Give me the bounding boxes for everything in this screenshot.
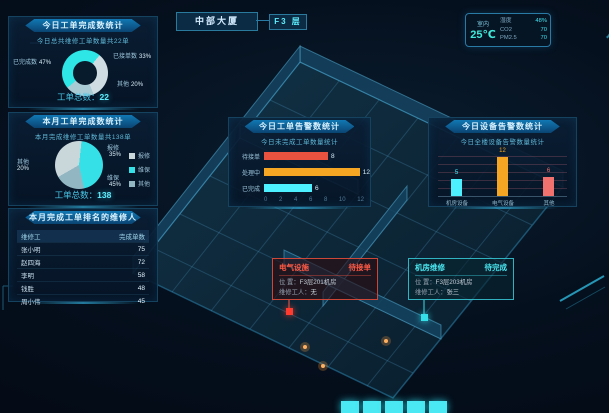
- alert-title: 电气设施: [279, 262, 309, 273]
- alert-status-badge: 待接单: [349, 262, 372, 273]
- panel-title: 今日工单完成数统计: [25, 19, 140, 32]
- dashboard-root: 中部大厦 F3 层 室内 25℃ 湿度 48% CO2 70 PM2.5 70 …: [0, 0, 609, 413]
- alert-card-electrical[interactable]: 电气设施 待接单 位 置：F3层201机房 维修工人：无: [272, 258, 378, 300]
- alert-status-badge: 待完成: [485, 262, 508, 273]
- legend-item: 报修: [129, 151, 150, 160]
- slice-label-repair: 报修35%: [107, 143, 121, 158]
- building-name: 中部大厦: [176, 12, 258, 31]
- table-header-row: 维修工完成单数: [17, 230, 149, 242]
- ranking-table: 维修工完成单数 张小明75 赵四海72 李明58 钱胜48 周小伟45: [17, 230, 149, 307]
- legend-item: 其他: [129, 179, 150, 188]
- work-order-total: 工单总数：22: [9, 91, 157, 103]
- indoor-label: 室内: [466, 19, 500, 28]
- environment-widget: 室内 25℃ 湿度 48% CO2 70 PM2.5 70: [465, 13, 551, 47]
- bar-electrical-equipment: 12: [497, 157, 508, 196]
- panel-month-completion: 本月工单完成数统计 本月完成维修工单数量共138单 其他20% 报修35% 维保…: [8, 112, 158, 206]
- header-connector: [256, 20, 269, 21]
- alert-marker-electrical[interactable]: [286, 308, 293, 315]
- bar-label: 其他: [529, 199, 569, 207]
- panel-title: 本月完成工单排名的维修人员: [25, 211, 140, 224]
- co2-value: 70: [541, 26, 547, 35]
- alert-marker-machine-room[interactable]: [421, 314, 428, 321]
- alert-card-machine-room[interactable]: 机房维修 待完成 位 置：F3层203机房 维修工人：张三: [408, 258, 514, 300]
- panel-today-alarms: 今日工单告警数统计 今日未完成工单数量统计 待接单 8 处理中 12 已完成 6…: [228, 117, 371, 207]
- slice-label-other: 其他20%: [15, 157, 29, 172]
- temperature-value: 25℃: [466, 28, 500, 41]
- slice-label-other: 其他20%: [117, 79, 143, 88]
- alert-worker-row: 维修工人：张三: [415, 288, 507, 298]
- panel-title: 今日工单告警数统计: [245, 120, 355, 133]
- bar-label: 电气设备: [483, 199, 523, 207]
- bar-room-equipment: 5: [451, 179, 462, 196]
- indoor-temp-block: 室内 25℃: [466, 19, 500, 41]
- pm25-label: PM2.5: [500, 34, 517, 43]
- x-axis-ticks: 02 46 810 12: [264, 197, 364, 203]
- panel-title: 本月工单完成数统计: [25, 115, 140, 128]
- page-dot-1[interactable]: [341, 401, 359, 413]
- bar-row-done: 已完成 6: [229, 180, 370, 196]
- panel-device-alarms: 今日设备告警数统计 今日全楼设备告警数量统计 5 12 6 机房设备 电气设备 …: [428, 117, 577, 207]
- page-dot-3[interactable]: [385, 401, 403, 413]
- table-row: 张小明75: [17, 242, 149, 255]
- floor-selector[interactable]: F3 层: [269, 14, 307, 30]
- co2-row: CO2 70: [500, 26, 547, 35]
- table-row: 钱胜48: [17, 281, 149, 294]
- bar-other: 6: [543, 177, 554, 196]
- page-dot-2[interactable]: [363, 401, 381, 413]
- donut-chart: [62, 50, 108, 96]
- page-dot-5[interactable]: [429, 401, 447, 413]
- table-row: 赵四海72: [17, 255, 149, 268]
- alert-worker-row: 维修工人：无: [279, 288, 371, 298]
- humidity-value: 48%: [535, 17, 547, 26]
- slice-label-accepted: 已接单数33%: [113, 51, 151, 60]
- pm25-row: PM2.5 70: [500, 34, 547, 43]
- panel-title: 今日设备告警数统计: [445, 120, 560, 133]
- alert-location-row: 位 置：F3层201机房: [279, 278, 371, 288]
- co2-label: CO2: [500, 26, 512, 35]
- equipment-lights: [300, 336, 391, 371]
- vertical-bar-plot: 5 12 6 机房设备 电气设备 其他: [438, 150, 567, 197]
- humidity-label: 湿度: [500, 17, 512, 26]
- bar-row-processing: 处理中 12: [229, 164, 370, 180]
- bar-label: 机房设备: [437, 199, 477, 207]
- slice-label-maintain: 维保45%: [107, 173, 121, 188]
- panel-subtitle: 今日未完成工单数量统计: [229, 136, 370, 146]
- pie-chart: [55, 141, 103, 189]
- table-row: 周小伟45: [17, 294, 149, 307]
- panel-subtitle: 今日总共维修工单数量共22单: [9, 35, 157, 45]
- pie-legend: 报修 维保 其他: [129, 151, 150, 188]
- work-order-total: 工单总数：138: [9, 189, 157, 201]
- panel-today-completion: 今日工单完成数统计 今日总共维修工单数量共22单 已完成数47% 已接单数33%…: [8, 16, 158, 108]
- panel-worker-ranking: 本月完成工单排名的维修人员 维修工完成单数 张小明75 赵四海72 李明58 钱…: [8, 208, 158, 302]
- panel-subtitle: 本月完成维修工单数量共138单: [9, 131, 157, 141]
- page-dot-4[interactable]: [407, 401, 425, 413]
- alert-location-row: 位 置：F3层203机房: [415, 278, 507, 288]
- pm25-value: 70: [541, 34, 547, 43]
- humidity-row: 湿度 48%: [500, 17, 547, 26]
- slice-label-done: 已完成数47%: [13, 57, 51, 66]
- bar-row-pending: 待接单 8: [229, 148, 370, 164]
- alert-title: 机房维修: [415, 262, 445, 273]
- table-row: 李明58: [17, 268, 149, 281]
- panel-subtitle: 今日全楼设备告警数量统计: [429, 136, 576, 146]
- legend-item: 维保: [129, 165, 150, 174]
